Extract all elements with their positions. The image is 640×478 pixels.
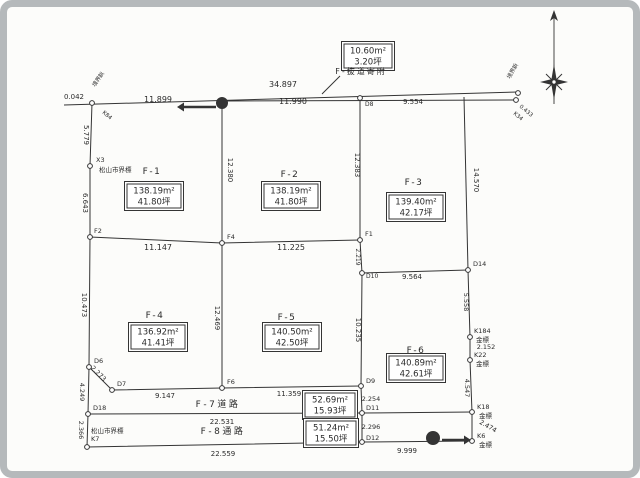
donation-annotation-box-area: 10.60m² [350, 47, 386, 57]
point-label: K18 [477, 403, 490, 411]
plot-label-F-1: F-1 [143, 167, 162, 177]
point-label: K7 [91, 435, 99, 443]
measurement-label: 10.235 [354, 318, 362, 343]
point-label: D14 [473, 260, 486, 268]
survey-point [468, 335, 473, 340]
micro-label: 境界鋲 [505, 61, 520, 80]
measurement-label: 12.469 [213, 306, 221, 331]
area-box-F-3-area: 139.40m² [395, 198, 436, 208]
point-label: D7 [117, 380, 126, 388]
divider-east [360, 97, 362, 442]
plot-label-F-2: F-2 [281, 170, 300, 180]
area-box-F-3-tsubo: 42.17坪 [400, 209, 433, 219]
area-box-F-5: 140.50m²42.50坪 [263, 323, 322, 352]
measurement-label: 2.152 [477, 343, 496, 351]
survey-point [85, 445, 90, 450]
road-area-box-area: 52.69m² [312, 396, 348, 406]
point-label: D9 [366, 377, 375, 385]
point-label: D6 [94, 357, 103, 365]
donation-caption: F-抜道寄附 [335, 66, 387, 76]
survey-point [220, 241, 225, 246]
area-box-F-5-area: 140.50m² [271, 328, 312, 338]
pole-dot [426, 431, 440, 445]
point-label: F6 [227, 378, 235, 386]
area-box-F-2-area: 138.19m² [270, 187, 311, 197]
point-label: D10 [366, 273, 378, 280]
measurement-label: 2.254 [362, 395, 381, 403]
road-mid-line [88, 412, 472, 414]
plot-label-F-4: F-4 [146, 311, 165, 321]
survey-point [359, 384, 364, 389]
survey-point [88, 235, 93, 240]
point-label: D11 [366, 404, 379, 412]
survey-point [88, 164, 93, 169]
road-area-box: 52.69m²15.93坪 [303, 391, 358, 420]
measurement-label: 11.359 [277, 390, 302, 398]
area-box-F-5-tsubo: 42.50坪 [276, 339, 309, 349]
measurement-label: 2.296 [362, 423, 381, 431]
survey-point [110, 388, 115, 393]
area-box-F-1: 138.19m²41.80坪 [125, 182, 184, 211]
road-label: F-8通路 [201, 425, 246, 437]
micro-label: K34 [512, 111, 524, 123]
area-box-F-6-tsubo: 42.61坪 [400, 370, 433, 380]
point-label: 松山市界標 [91, 426, 124, 435]
measurement-label: 5.779 [82, 125, 90, 145]
survey-point [358, 238, 363, 243]
road-area-box-tsubo: 15.50坪 [315, 435, 348, 445]
measurement-label: 11.990 [279, 97, 307, 106]
survey-point [360, 440, 365, 445]
survey-point [468, 358, 473, 363]
survey-point [516, 91, 521, 96]
road-area-box-area: 51.24m² [313, 424, 349, 434]
area-box-F-3: 139.40m²42.17坪 [387, 193, 446, 222]
micro-label: K84 [101, 110, 113, 122]
area-box-F-2: 138.19m²41.80坪 [262, 182, 321, 211]
right-upper-boundary [464, 97, 468, 270]
survey-plan-drawing: F-1138.19m²41.80坪F-2138.19m²41.80坪F-3139… [0, 0, 640, 478]
point-label: 金標 [476, 359, 490, 368]
area-box-F-1-area: 138.19m² [133, 187, 174, 197]
mid-horizontal-line [90, 237, 360, 243]
point-label: 松山市界標 [99, 165, 132, 174]
area-box-F-4: 136.92m²41.41坪 [129, 323, 188, 352]
point-label: F2 [94, 227, 102, 235]
road-label: F-7道路 [196, 398, 241, 410]
point-label: 金標 [479, 440, 493, 449]
measurement-label: 2.366 [77, 421, 85, 440]
measurement-label: 22.559 [211, 450, 236, 458]
area-box-F-2-tsubo: 41.80坪 [275, 198, 308, 208]
plot-label-F-3: F-3 [405, 178, 424, 188]
survey-point [360, 271, 365, 276]
measurement-label: 6.643 [81, 193, 89, 213]
point-label: D18 [93, 404, 106, 412]
point-label: D8 [365, 101, 374, 108]
direction-arrow-head [177, 103, 184, 112]
measurement-label: 9.564 [402, 273, 423, 281]
measurement-label: 9.554 [403, 98, 424, 106]
direction-arrow-head [464, 436, 471, 445]
road-area-box: 51.24m²15.50坪 [304, 419, 359, 448]
survey-point [360, 411, 365, 416]
survey-point [470, 410, 475, 415]
point-label: K6 [477, 432, 485, 440]
measurement-label: 22.531 [210, 418, 235, 426]
area-box-F-6: 140.89m²42.61坪 [387, 354, 446, 383]
measurement-label: 12.383 [353, 153, 361, 178]
area-box-F-4-tsubo: 41.41坪 [142, 339, 175, 349]
survey-point [466, 268, 471, 273]
annotation-leader [322, 76, 340, 94]
left-boundary [87, 103, 92, 447]
measurement-label: 4.249 [78, 383, 86, 402]
survey-point [86, 412, 91, 417]
survey-point [470, 439, 475, 444]
point-label: F4 [227, 233, 235, 241]
measurement-label: 12.380 [226, 158, 234, 183]
measurement-label: 5.558 [462, 293, 470, 312]
road-top-line [112, 386, 361, 390]
micro-label: 境界鋲 [90, 70, 106, 89]
measurement-label: 2.219 [354, 248, 361, 265]
area-box-F-6-area: 140.89m² [395, 359, 436, 369]
scanned-survey-page: F-1138.19m²41.80坪F-2138.19m²41.80坪F-3139… [0, 0, 640, 478]
north-compass-icon [540, 10, 568, 104]
area-box-F-4-area: 136.92m² [137, 328, 178, 338]
donation-annotation-box-tsubo: 3.20坪 [354, 58, 382, 68]
point-label: 金標 [479, 411, 493, 420]
point-label: F1 [365, 230, 373, 238]
measurement-label: 0.042 [64, 93, 84, 101]
point-label: D12 [366, 434, 379, 442]
point-label: K22 [474, 351, 487, 359]
road-area-box-tsubo: 15.93坪 [314, 407, 347, 417]
point-label: K184 [474, 327, 491, 335]
measurement-label: 4.547 [463, 379, 471, 398]
measurement-label: 11.147 [144, 243, 172, 252]
measurement-label: 11.225 [277, 243, 305, 252]
plot-label-F-5: F-5 [278, 313, 297, 323]
pole-marker [177, 97, 228, 112]
pole-dot [216, 97, 228, 109]
measurement-label: 9.999 [397, 447, 417, 455]
pole-marker [426, 431, 471, 445]
measurement-label: 11.899 [144, 95, 172, 104]
point-label: X3 [96, 156, 105, 164]
measurement-label: 14.570 [472, 168, 480, 193]
survey-point [87, 365, 92, 370]
measurement-label: 9.147 [155, 392, 175, 400]
survey-point [90, 101, 95, 106]
survey-point [514, 98, 519, 103]
measurement-label: 34.897 [269, 80, 297, 89]
point-label: 金標 [476, 335, 490, 344]
survey-point [358, 96, 363, 101]
area-box-F-1-tsubo: 41.80坪 [138, 198, 171, 208]
measurement-label: 10.473 [80, 293, 88, 318]
survey-point [220, 386, 225, 391]
